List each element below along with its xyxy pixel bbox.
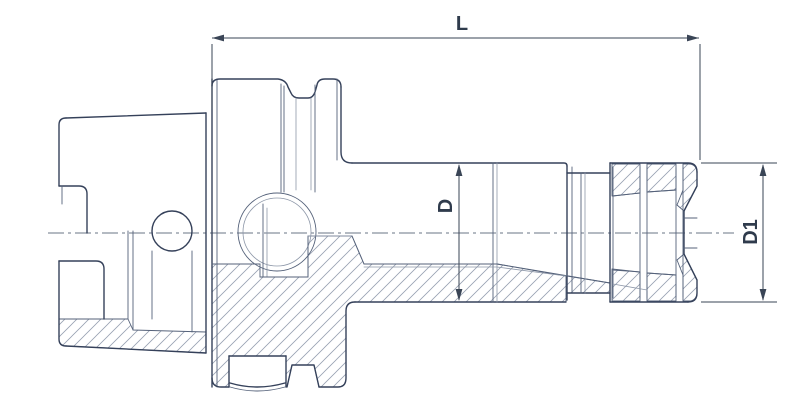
dim-length-arrow-left xyxy=(212,35,224,42)
technical-drawing: LDD1 xyxy=(0,0,812,408)
dim-length-arrow-right xyxy=(687,35,699,42)
hatch-shank-wall xyxy=(59,319,206,353)
dim-diameter1-label: D1 xyxy=(740,219,762,245)
shank-notch-step xyxy=(59,186,87,233)
hatch-neck xyxy=(567,276,610,293)
orientation-notch xyxy=(287,365,319,387)
dim-length-label: L xyxy=(456,13,468,35)
coolant-ball-outer xyxy=(238,193,316,271)
hatch-nut-top-b xyxy=(647,164,676,192)
hatch-nut-bottom-a xyxy=(612,269,640,301)
dim-diameter1-arrow-bottom xyxy=(760,289,767,301)
drawing-elements: LDD1 xyxy=(48,13,777,391)
dim-diameter1-arrow-top xyxy=(760,164,767,176)
hatch-nut-top-a xyxy=(612,164,640,196)
drive-hole-circle xyxy=(152,211,192,251)
shank-top-edge xyxy=(66,113,206,118)
coolant-ball-inner xyxy=(243,198,311,266)
hatch-nut-bottom-b xyxy=(647,273,676,301)
dim-diameter-arrow-top xyxy=(456,164,463,176)
shank-left-edge xyxy=(59,118,66,186)
dim-diameter-label: D xyxy=(435,199,457,213)
flange-top-profile xyxy=(212,79,341,98)
hatch-flange-body xyxy=(212,236,566,387)
screw-end-arc-1 xyxy=(230,383,285,387)
flange-right-edge xyxy=(341,87,352,163)
shank-bore-block xyxy=(59,261,104,319)
drawing-page: LDD1 xyxy=(0,0,812,408)
